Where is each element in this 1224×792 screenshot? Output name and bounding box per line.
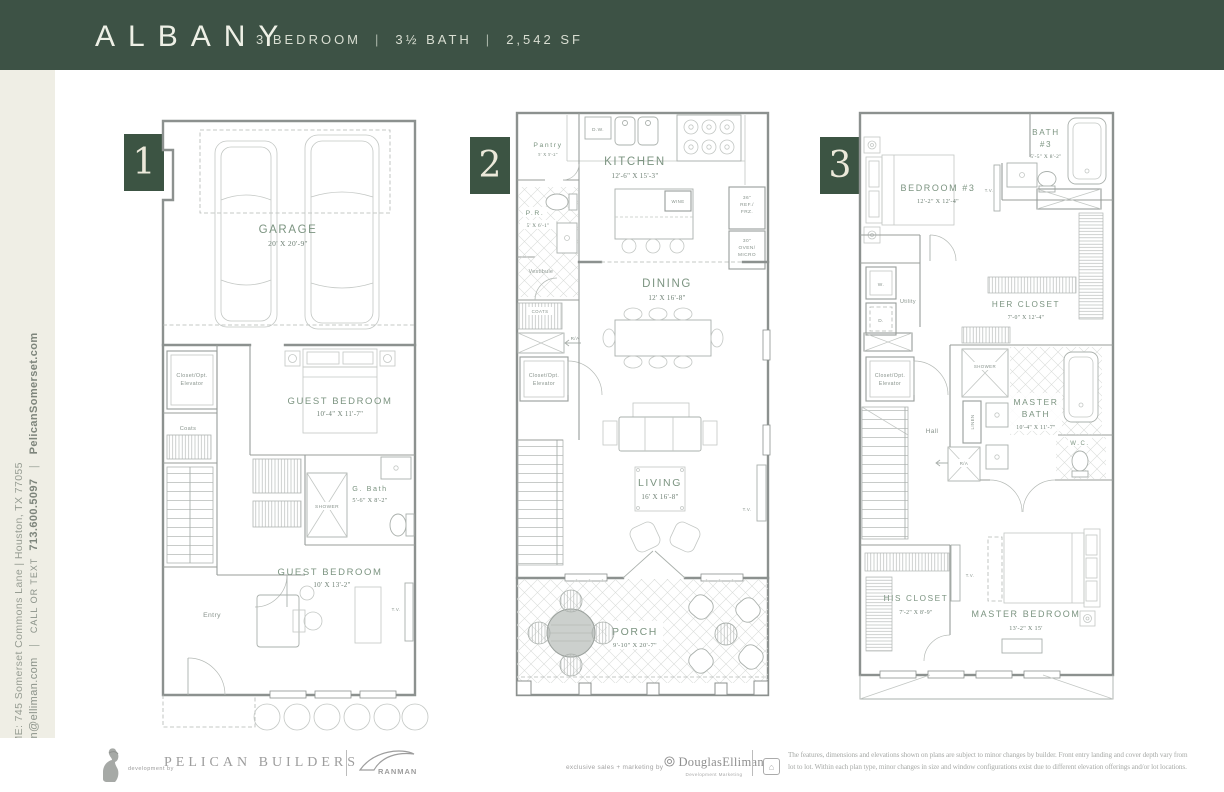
windows bbox=[270, 691, 396, 698]
range-icon bbox=[677, 115, 741, 161]
closet-elevator-label: Elevator bbox=[181, 381, 204, 387]
master-bath-label: BATH bbox=[1022, 409, 1050, 419]
sidebar: Renay Cohen Cohen@elliman.com | CALL OR … bbox=[0, 70, 55, 792]
powder-room-dims: 5' X 6'-1" bbox=[527, 223, 550, 229]
return-air-chase bbox=[864, 333, 912, 351]
spec-bedroom: 3 BEDROOM bbox=[256, 32, 361, 47]
tub-icon bbox=[1064, 352, 1098, 422]
stairs bbox=[518, 440, 563, 565]
desk-icon bbox=[257, 586, 322, 647]
bushes bbox=[254, 704, 428, 730]
oven-label: 30" bbox=[743, 238, 751, 244]
call-or-text-label: CALL OR TEXT bbox=[29, 558, 39, 634]
stairs bbox=[167, 467, 213, 563]
speaker-icon bbox=[864, 137, 880, 243]
footer-divider bbox=[752, 750, 753, 776]
porch-label: PORCH bbox=[612, 626, 658, 638]
dining-label: DINING bbox=[642, 278, 692, 290]
tv-label: T.V. bbox=[966, 573, 974, 578]
living-label: LIVING bbox=[638, 477, 682, 489]
vestibule-label: Vestibule bbox=[529, 269, 554, 275]
disclaimer: The features, dimensions and elevations … bbox=[788, 750, 1187, 773]
exclusive-sales-label: exclusive sales + marketing by bbox=[566, 764, 663, 771]
separator: | bbox=[28, 465, 40, 468]
elliman-subtitle: Development Marketing bbox=[664, 772, 764, 777]
master-bath-label: MASTER bbox=[1013, 397, 1058, 407]
floor-number: 3 bbox=[829, 145, 852, 186]
bed-icon bbox=[988, 529, 1100, 607]
oven-label: MICRO bbox=[738, 252, 756, 258]
guest-bedroom-upper-dims: 10'-4" X 11'-7" bbox=[317, 410, 364, 418]
disclaimer-line: The features, dimensions and elevations … bbox=[788, 750, 1187, 762]
floor-2-plan: D.W. Pantry 5' X 5'-2" P.R. 5' X 6'-1" bbox=[505, 105, 780, 705]
guest-bedroom-upper-label: GUEST BEDROOM bbox=[287, 396, 392, 407]
utility-label: Utility bbox=[900, 299, 916, 305]
oven-label: OVEN/ bbox=[739, 245, 756, 251]
floor-1-plan: GARAGE 20' X 20'-9" Closet/Opt. Elevator… bbox=[155, 105, 430, 735]
elevator-closet bbox=[167, 351, 217, 409]
wc-label: W.C. bbox=[1070, 441, 1089, 447]
his-closet-dims: 7'-2" X 8'-9" bbox=[899, 610, 932, 616]
separator: | bbox=[28, 644, 40, 647]
armchair-icon bbox=[668, 520, 703, 555]
g-bath-dims: 5'-6" X 8'-2" bbox=[352, 497, 387, 504]
spec-bath: 3½ BATH bbox=[395, 32, 471, 47]
flyer-page: ALBANY 3 BEDROOM | 3½ BATH | 2,542 SF Re… bbox=[0, 0, 1224, 792]
closet-elevator-label: Elevator bbox=[533, 381, 555, 387]
closet-elevator-label: Closet/Opt. bbox=[176, 373, 207, 379]
linen-label: LINEN bbox=[970, 415, 975, 430]
phone-number: 713.600.5097 bbox=[28, 479, 40, 551]
bedroom3-label: BEDROOM #3 bbox=[900, 183, 975, 193]
garage-label: GARAGE bbox=[259, 224, 318, 236]
ref-label: FRZ. bbox=[741, 209, 753, 215]
bath3-label: BATH bbox=[1032, 128, 1060, 137]
ranman-logo: RANMAN bbox=[356, 744, 420, 784]
coats-label: Coats bbox=[180, 426, 197, 432]
spec-separator: | bbox=[486, 32, 492, 47]
douglas-elliman-logo: DouglasElliman Development Marketing bbox=[664, 753, 764, 777]
website: PelicanSomerset.com bbox=[28, 332, 40, 454]
floor-number: 2 bbox=[479, 145, 502, 186]
ranman-name: RANMAN bbox=[378, 767, 417, 776]
house-icon: ⌂ bbox=[763, 758, 780, 775]
ref-label: 36" bbox=[743, 195, 751, 201]
her-closet-dims: 7'-0" X 12'-4" bbox=[1008, 315, 1044, 321]
toilet-icon bbox=[546, 194, 577, 210]
bath3-dims: 5'-5" X 8'-2" bbox=[1030, 154, 1061, 160]
sink-icon bbox=[615, 117, 658, 145]
powder-room-label: P.R. bbox=[526, 210, 545, 217]
pantry-dims: 5' X 5'-2" bbox=[538, 152, 558, 157]
entry-label: Entry bbox=[203, 612, 221, 619]
spec-separator: | bbox=[375, 32, 381, 47]
dryer-label: D. bbox=[878, 318, 884, 324]
washer-label: W. bbox=[878, 282, 884, 288]
bed-icon bbox=[285, 349, 395, 433]
disclaimer-line: lot to lot. Within each plan type, minor… bbox=[788, 762, 1187, 774]
bedroom3-dims: 12'-2" X 12'-4" bbox=[917, 198, 959, 205]
contact-line: Renay Cohen Cohen@elliman.com | CALL OR … bbox=[28, 332, 40, 792]
footer: development by PELICAN BUILDERS RANMAN e… bbox=[0, 738, 1224, 792]
tv-label: T.V. bbox=[743, 507, 752, 512]
chase-box bbox=[1037, 189, 1101, 209]
armchair-icon bbox=[628, 520, 663, 555]
plan-specs: 3 BEDROOM | 3½ BATH | 2,542 SF bbox=[256, 32, 583, 47]
ref-label: REF./ bbox=[740, 202, 754, 208]
shower-label: SHOWER bbox=[315, 504, 339, 510]
toilet-icon bbox=[390, 514, 414, 536]
closet-elevator-label: Elevator bbox=[879, 381, 901, 387]
guest-bedroom-lower-label: GUEST BEDROOM bbox=[277, 567, 382, 578]
floor-3-plan: BATH #3 5'-5" X 8'-2" BEDROOM #3 12'-2" … bbox=[850, 105, 1125, 710]
master-bedroom-dims: 13'-2" X 15' bbox=[1009, 625, 1042, 632]
garage-dims: 20' X 20'-9" bbox=[268, 239, 308, 248]
dining-dims: 12' X 16'-8" bbox=[648, 294, 685, 302]
kitchen-label: KITCHEN bbox=[604, 156, 666, 168]
header-bar: ALBANY 3 BEDROOM | 3½ BATH | 2,542 SF bbox=[0, 0, 1224, 70]
kitchen-dims: 12'-6" X 15'-3" bbox=[612, 172, 659, 180]
footer-divider bbox=[346, 750, 347, 776]
pelican-logo bbox=[95, 746, 125, 784]
tv-label: T.V. bbox=[985, 188, 993, 193]
coats-label: COATS bbox=[532, 309, 549, 314]
closet-elevator-label: Closet/Opt. bbox=[529, 373, 559, 379]
g-bath-label: G. Bath bbox=[352, 484, 388, 493]
her-closet-label: HER CLOSET bbox=[992, 300, 1060, 309]
stairs bbox=[862, 407, 908, 539]
his-closet-label: HIS CLOSET bbox=[884, 594, 949, 603]
closet-elevator-label: Closet/Opt. bbox=[875, 373, 905, 379]
elliman-knot-icon bbox=[664, 756, 675, 767]
shower-label: SHOWER bbox=[974, 364, 996, 369]
floor-2-badge: 2 bbox=[470, 137, 510, 194]
porch-posts bbox=[517, 681, 768, 695]
tub-icon bbox=[1068, 118, 1106, 184]
tv-label: T.V. bbox=[392, 607, 401, 612]
toilet-icon bbox=[1072, 451, 1088, 477]
guest-bedroom-lower-dims: 10' X 13'-2" bbox=[313, 581, 350, 589]
dishwasher-label: D.W. bbox=[592, 127, 604, 133]
roof-outline bbox=[860, 675, 1113, 699]
ra-label: R/A bbox=[960, 461, 969, 466]
pantry-label: Pantry bbox=[533, 142, 562, 149]
wine-label: WINE bbox=[671, 199, 684, 204]
dining-table-icon bbox=[603, 308, 723, 368]
elevator-closet bbox=[866, 357, 948, 401]
hall-label: Hall bbox=[926, 428, 939, 435]
speaker-icon bbox=[1080, 611, 1095, 626]
master-bath-dims: 10'-4" X 11'-7" bbox=[1016, 425, 1055, 431]
builder-name: PELICAN BUILDERS bbox=[164, 755, 359, 771]
sofa-icon bbox=[603, 403, 717, 451]
spec-sf: 2,542 SF bbox=[506, 32, 583, 47]
shower bbox=[962, 349, 1008, 397]
floor-number: 1 bbox=[133, 142, 156, 183]
master-bedroom-label: MASTER BEDROOM bbox=[972, 609, 1081, 619]
bath3-label: #3 bbox=[1040, 140, 1052, 149]
windows bbox=[565, 330, 770, 581]
porch-dims: 9'-10" X 20'-7" bbox=[613, 642, 657, 649]
rug-icon bbox=[635, 467, 685, 511]
elevator-closet bbox=[520, 357, 602, 401]
living-dims: 16' X 16'-8" bbox=[641, 493, 678, 501]
